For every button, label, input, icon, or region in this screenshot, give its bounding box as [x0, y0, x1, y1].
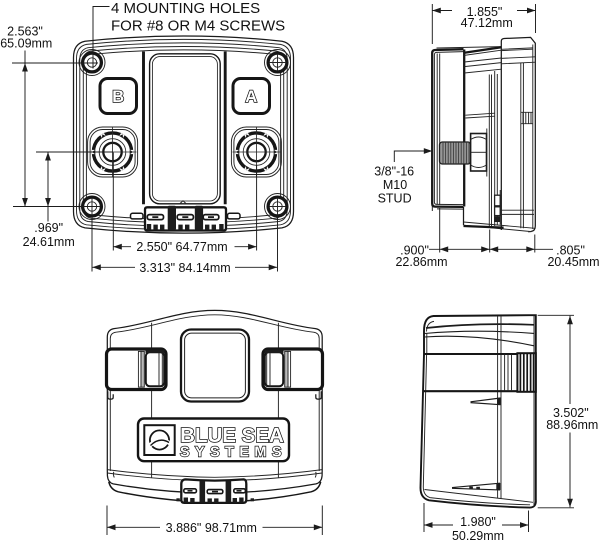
svg-text:FOR #8 OR M4 SCREWS: FOR #8 OR M4 SCREWS [111, 18, 285, 35]
svg-text:50.29mm: 50.29mm [452, 529, 504, 541]
svg-text:.969": .969" [34, 221, 63, 235]
svg-text:M10: M10 [383, 178, 407, 192]
svg-text:3.886" 98.71mm: 3.886" 98.71mm [166, 521, 257, 535]
svg-text:47.12mm: 47.12mm [461, 16, 513, 30]
svg-text:22.86mm: 22.86mm [395, 255, 447, 269]
svg-text:3/8"-16: 3/8"-16 [374, 164, 414, 178]
svg-text:2.550" 64.77mm: 2.550" 64.77mm [136, 240, 227, 254]
svg-text:STUD: STUD [378, 192, 412, 206]
svg-text:65.09mm: 65.09mm [0, 37, 52, 51]
svg-text:4 MOUNTING HOLES: 4 MOUNTING HOLES [111, 0, 260, 17]
svg-text:24.61mm: 24.61mm [23, 235, 75, 249]
svg-text:A: A [245, 88, 257, 106]
svg-text:20.45mm: 20.45mm [547, 255, 599, 269]
svg-text:SYSTEMS: SYSTEMS [180, 445, 287, 461]
svg-text:3.313" 84.14mm: 3.313" 84.14mm [139, 261, 230, 275]
svg-text:1.980": 1.980" [460, 515, 496, 529]
svg-text:BLUE SEA: BLUE SEA [180, 424, 284, 447]
svg-text:88.96mm: 88.96mm [546, 418, 598, 432]
svg-text:B: B [112, 88, 124, 106]
